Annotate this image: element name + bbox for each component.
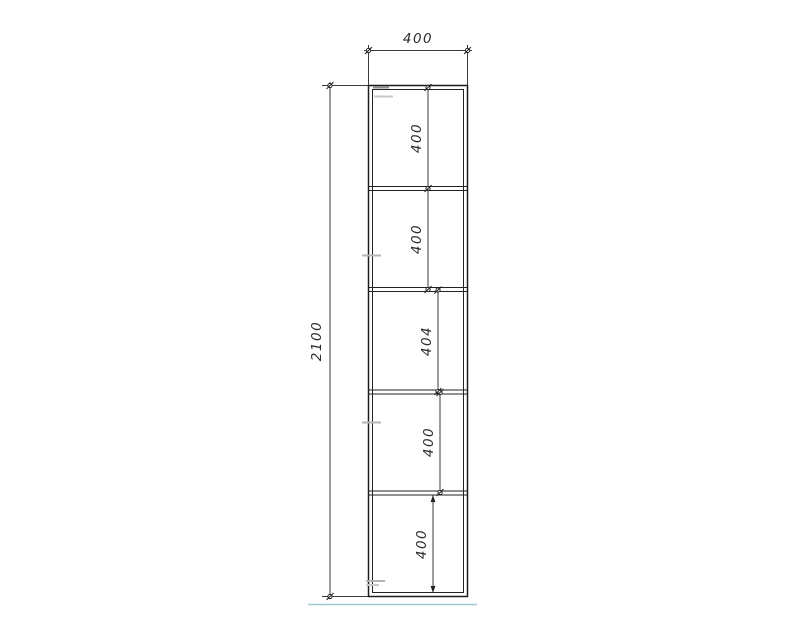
dimension-compartment-5: 400	[414, 495, 435, 593]
dimension-compartment-2: 400	[409, 189, 432, 294]
overall-height-label: 2100	[309, 321, 325, 361]
compartment-4-label: 400	[421, 427, 437, 457]
dimension-compartment-3: 404	[419, 287, 442, 396]
dimension-overall-height: 2100	[309, 82, 368, 600]
cabinet-elevation-drawing: 400 2100	[0, 0, 785, 642]
dim-terminator	[464, 47, 471, 54]
dim-arrow-up	[431, 495, 436, 502]
dim-terminator	[327, 82, 334, 89]
compartment-2-label: 400	[409, 224, 425, 254]
shelf-2	[369, 288, 467, 292]
dimension-compartment-1: 400	[409, 84, 432, 192]
hardware-marks	[362, 88, 393, 586]
shelf-1	[369, 187, 467, 191]
dim-terminator	[365, 47, 372, 54]
shelf-4	[369, 491, 467, 495]
drawing-canvas: 400 2100	[0, 0, 785, 642]
cabinet-outer-outline	[369, 86, 468, 597]
compartment-3-label: 404	[419, 326, 435, 356]
compartment-1-label: 400	[409, 123, 425, 153]
shelf-3	[369, 390, 467, 394]
compartment-5-label: 400	[414, 529, 430, 559]
cabinet-structure	[362, 86, 468, 597]
dim-terminator	[327, 593, 334, 600]
cabinet-inner-outline	[373, 90, 464, 593]
dimension-overall-width: 400	[364, 31, 472, 85]
dimension-compartment-4: 400	[421, 389, 444, 496]
overall-width-label: 400	[403, 31, 433, 47]
dim-arrow-down	[431, 586, 436, 593]
